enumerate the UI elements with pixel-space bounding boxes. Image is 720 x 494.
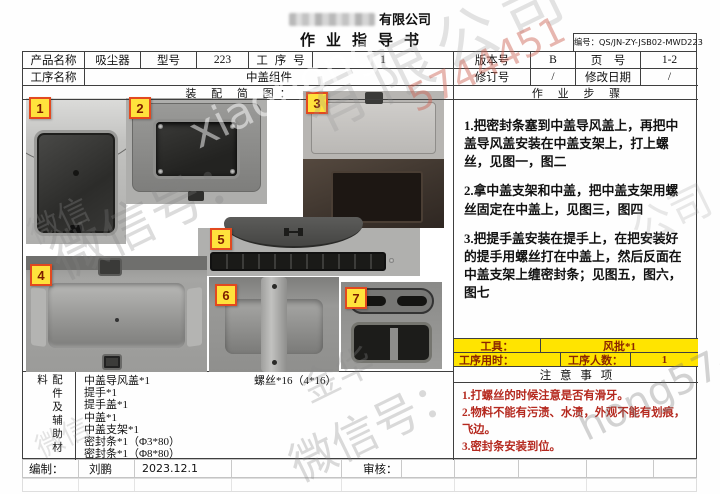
people-value: 1 [631, 353, 698, 367]
process-name-value: 中盖组件 [85, 69, 454, 86]
step-2: 2.拿中盖支架和中盖，把中盖支架用螺丝固定在中盖上，见图三，图四 [464, 182, 690, 218]
document-number: 编号：QS/JN-ZY-JSB02-MWD223 [573, 33, 697, 51]
footer-row: 编制： 刘鹏 2023.12.1 审核： [22, 459, 697, 478]
diagram-header: 装 配 简 图： [23, 86, 454, 100]
figure-tag-1: 1 [29, 97, 51, 119]
material-item: 密封条*1（Φ3*80） [84, 436, 453, 448]
version-value: B [531, 52, 576, 69]
note-2: 2.物料不能有污渍、水渍，外观不能有划痕，飞边。 [462, 405, 690, 439]
model-label: 型号 [141, 52, 197, 69]
version-label: 版本号 [454, 52, 531, 69]
step-3: 3.把提手盖安装在提手上，在把安装好的提手用螺丝打在中盖上，然后反面在中盖支架上… [464, 230, 690, 303]
revision-value: / [531, 69, 576, 86]
figure-tag-2: 2 [129, 97, 151, 119]
process-no-label: 工 序 号 [249, 52, 313, 69]
steps-header: 作 业 步 骤 [454, 86, 698, 100]
rev-date-value: / [641, 69, 698, 86]
page-label: 页 号 [576, 52, 641, 69]
material-item: 中盖*1 [84, 412, 453, 424]
prepared-name: 刘鹏 [89, 460, 112, 477]
time-label: 工序用时： [454, 353, 561, 367]
figure-tag-3: 3 [306, 92, 328, 114]
revision-label: 修订号 [454, 69, 531, 86]
figure-tag-6: 6 [215, 284, 237, 306]
tool-label: 工具： [454, 339, 541, 353]
materials-label: 配件及辅助材料 [23, 372, 76, 460]
product-name-value: 吸尘器 [85, 52, 141, 69]
material-item: 提手盖*1 [84, 399, 453, 411]
page-value: 1-2 [641, 52, 698, 69]
step-1: 1.把密封条塞到中盖导风盖上，再把中盖导风盖安装在中盖支架上，打上螺丝，见图一，… [464, 117, 690, 171]
figure-tag-4: 4 [30, 264, 52, 286]
work-instruction-sheet: 有限公司 作业指导书 编号：QS/JN-ZY-JSB02-MWD223 产品名称… [0, 0, 720, 494]
material-item: 密封条*1（Φ8*80） [84, 448, 453, 460]
company-name-line: 有限公司 [0, 9, 720, 28]
empty-grid-row [22, 478, 697, 492]
main-table: 产品名称 吸尘器 型号 223 工 序 号 1 版本号 B 页 号 1-2 工序… [22, 51, 697, 459]
doc-no-label: 编号： [574, 37, 599, 47]
company-suffix: 有限公司 [379, 12, 431, 27]
prepared-date: 2023.12.1 [142, 460, 198, 477]
model-value: 223 [197, 52, 249, 69]
people-label: 工序人数： [561, 353, 631, 367]
work-steps-text: 1.把密封条塞到中盖导风盖上，再把中盖导风盖安装在中盖支架上，打上螺丝，见图一，… [454, 100, 698, 339]
process-no-value: 1 [313, 52, 454, 69]
material-item: 提手*1 [84, 387, 453, 399]
notes-list: 1.打螺丝的时候注意是否有滑牙。 2.物料不能有污渍、水渍，外观不能有划痕，飞边… [454, 383, 698, 460]
materials-list: 中盖导风盖*1 提手*1 提手盖*1 中盖*1 中盖支架*1 密封条*1（Φ3*… [76, 372, 454, 460]
process-name-label: 工序名称 [23, 69, 85, 86]
product-name-label: 产品名称 [23, 52, 85, 69]
tray-part [34, 130, 118, 236]
tool-value: 风批*1 [541, 339, 698, 353]
photo-figure-4 [26, 256, 207, 372]
prepared-label: 编制： [29, 460, 64, 477]
figure-tag-5: 5 [210, 228, 232, 250]
note-1: 1.打螺丝的时候注意是否有滑牙。 [462, 388, 690, 405]
review-label: 审核： [363, 460, 398, 477]
material-item-screws: 螺丝*16（4*16） [254, 375, 337, 387]
redacted-company-name [289, 13, 375, 26]
doc-no-value: QS/JN-ZY-JSB02-MWD223 [599, 37, 703, 47]
notes-header: 注 意 事 项 [454, 367, 698, 383]
material-item: 中盖支架*1 [84, 424, 453, 436]
figure-tag-7: 7 [345, 287, 367, 309]
photo-figure-1 [26, 98, 126, 244]
note-3: 3.密封条安装到位。 [462, 439, 690, 456]
rev-date-label: 修改日期 [576, 69, 641, 86]
